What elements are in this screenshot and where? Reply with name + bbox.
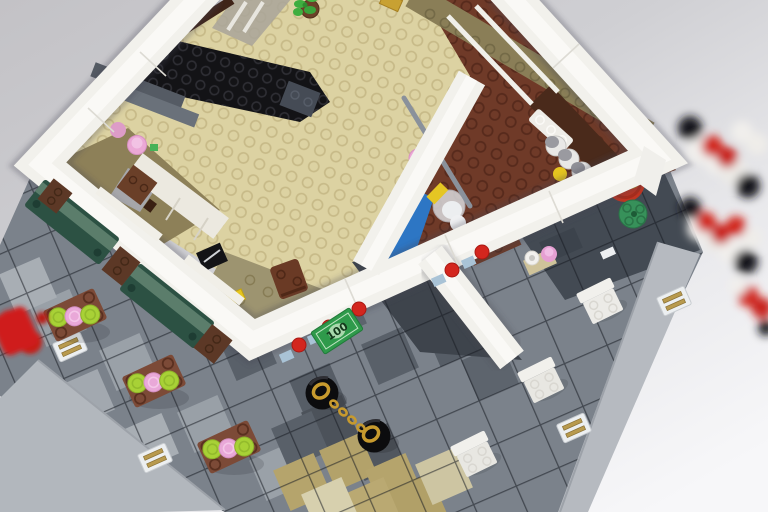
flower-stud	[352, 302, 366, 316]
photo-stage: 100	[0, 0, 768, 512]
lego-scene: 100	[0, 0, 768, 512]
flower-stud	[475, 245, 489, 259]
scooter-wheel	[306, 377, 339, 410]
green-round-plate	[619, 200, 647, 228]
flower-stud	[445, 263, 459, 277]
potted-plant	[293, 0, 319, 18]
green-piece	[150, 144, 158, 151]
flower-stud	[292, 338, 306, 352]
